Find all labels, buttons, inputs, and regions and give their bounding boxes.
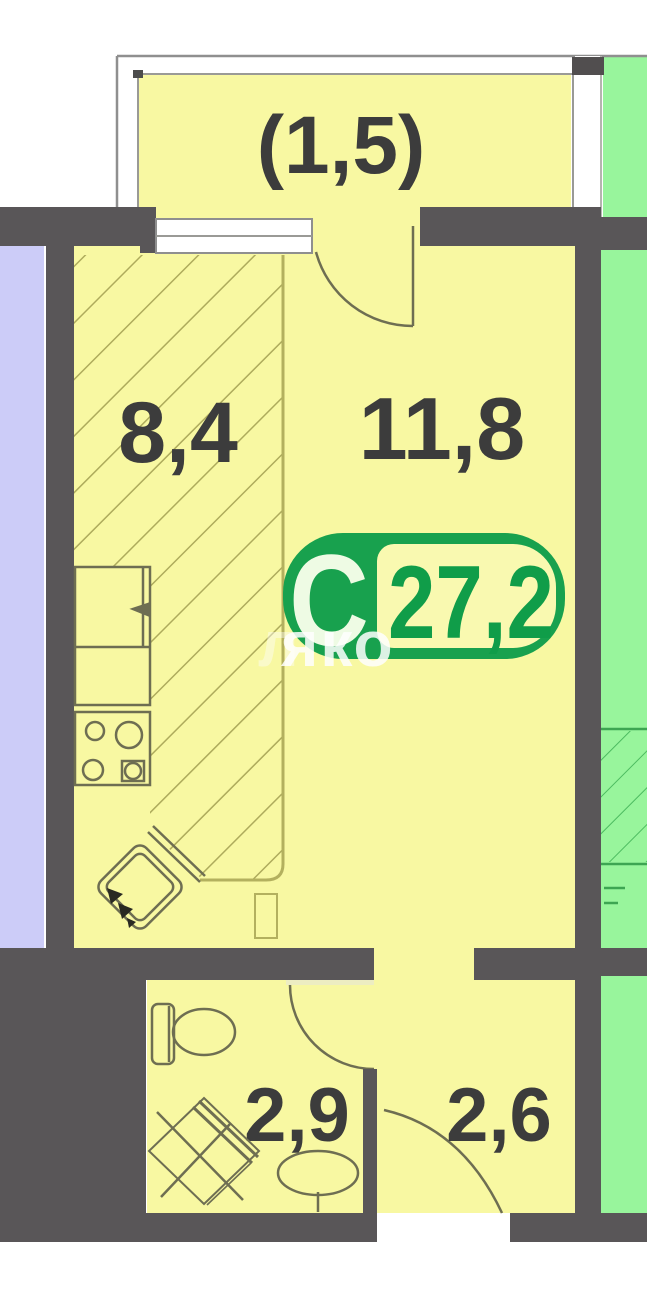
svg-text:2,9: 2,9 [244, 1073, 350, 1158]
svg-text:8,4: 8,4 [118, 385, 238, 481]
svg-text:яко: яко [280, 608, 395, 680]
svg-text:2,6: 2,6 [446, 1073, 552, 1158]
svg-text:(1,5): (1,5) [257, 100, 426, 191]
svg-text:11,8: 11,8 [359, 379, 525, 478]
svg-text:27,2: 27,2 [388, 545, 554, 661]
